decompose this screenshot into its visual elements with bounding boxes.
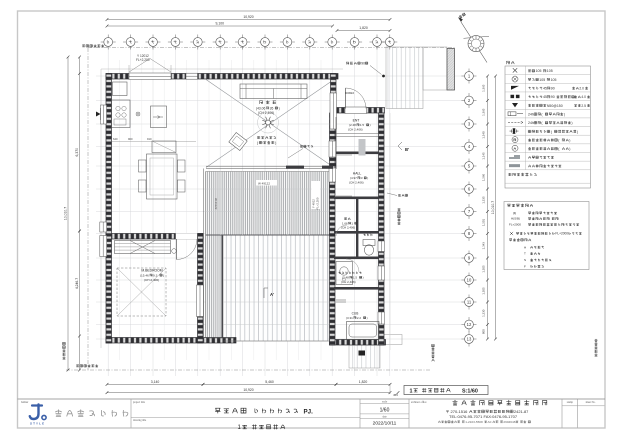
svg-text:4,246.7: 4,246.7 [75,278,79,289]
svg-text:1,235: 1,235 [481,196,485,204]
svg-text:): ) [367,316,368,320]
svg-text:910: 910 [147,137,152,141]
svg-text:105: 105 [539,78,545,82]
svg-text:PJ.: PJ. [304,408,314,415]
svg-text:W: W [513,211,516,215]
svg-text:11: 11 [467,300,472,305]
svg-text:): ) [569,147,570,151]
svg-text:45: 45 [543,87,547,91]
svg-text:): ) [577,130,578,134]
svg-text:(CH 2,406): (CH 2,406) [348,127,363,131]
svg-text:13: 13 [467,337,472,342]
svg-text:(15.46: (15.46 [140,273,149,277]
svg-text:FL+2000: FL+2000 [555,232,568,236]
svg-text:2904648: 2904648 [503,420,515,424]
svg-text:H: H [524,245,526,249]
svg-text:TEL:0476-95-7071 FAX:0476-95-1: TEL:0476-95-7071 FAX:0476-95-1707 [449,414,518,419]
svg-text:1,201: 1,201 [481,218,485,226]
svg-text:90: 90 [551,87,555,91]
svg-text:1,145: 1,145 [481,152,485,160]
svg-text:ENT: ENT [353,119,360,123]
svg-text:10,010.7: 10,010.7 [64,207,68,220]
svg-text:A': A' [270,292,274,297]
svg-text:1,260: 1,260 [481,173,485,181]
svg-text:1,365: 1,365 [481,108,485,116]
svg-text:1,820: 1,820 [359,380,368,384]
svg-text:T: T [524,252,526,256]
svg-text:): ) [569,138,570,142]
svg-text:1,820: 1,820 [359,26,368,30]
svg-text:1,205: 1,205 [481,287,485,295]
svg-text:): ) [275,141,276,145]
svg-text:W 21122: W 21122 [214,198,218,210]
svg-text:455: 455 [393,393,398,397]
svg-text:1,230: 1,230 [481,309,485,317]
svg-text:M.BEDROOM: M.BEDROOM [141,269,162,273]
svg-text:S:1/60: S:1/60 [462,388,478,394]
svg-text:1-2103-5508: 1-2103-5508 [465,420,483,424]
svg-text:24h: 24h [528,121,534,125]
svg-text:10,010.7: 10,010.7 [491,201,495,214]
svg-text:): ) [279,106,280,110]
svg-text:105: 105 [551,78,557,82]
svg-text:): ) [363,276,364,280]
svg-text:45: 45 [543,95,547,99]
svg-text:): ) [370,123,371,127]
svg-text:): ) [571,121,572,125]
svg-text:9,100: 9,100 [216,21,225,25]
svg-text:5,460: 5,460 [265,380,274,384]
svg-text:4.0: 4.0 [581,95,586,99]
svg-text:10,920: 10,920 [243,388,253,392]
svg-text:S: S [524,258,526,262]
svg-text:26: 26 [270,106,274,110]
svg-text:FL+2000: FL+2000 [509,223,521,227]
svg-text:sheet No.: sheet No. [586,401,596,404]
svg-text:): ) [564,112,565,116]
svg-text:FL+2,200: FL+2,200 [136,58,150,62]
svg-text:90: 90 [551,95,555,99]
svg-text:architect office: architect office [411,401,427,404]
svg-text:6,370: 6,370 [75,148,79,157]
svg-text:10,920: 10,920 [243,15,253,19]
svg-text:D0822: D0822 [345,91,354,95]
svg-text:): ) [367,176,368,180]
svg-text:project title: project title [133,401,146,404]
svg-text:(CH 2,406): (CH 2,406) [144,278,159,282]
svg-text:1,205: 1,205 [481,265,485,273]
svg-text:105: 105 [547,69,553,73]
svg-text:(CH 2,406): (CH 2,406) [258,111,274,115]
svg-text:(CH 2,406): (CH 2,406) [341,280,356,284]
svg-text:2.5: 2.5 [581,104,586,108]
svg-text:H(S/B): H(S/B) [511,217,520,221]
svg-text:2.2: 2.2 [357,316,362,320]
svg-text:HALL: HALL [353,172,362,176]
svg-text:1,240: 1,240 [481,131,485,139]
svg-text:B': B' [405,147,409,152]
svg-text:1: 1 [410,388,413,394]
svg-text:A0: A0 [488,420,492,424]
svg-text:(CH 2,406): (CH 2,406) [341,226,355,230]
svg-text:900: 900 [128,137,133,141]
svg-text:90: 90 [361,62,365,66]
svg-text:1/60: 1/60 [380,407,390,413]
svg-text:10: 10 [467,278,472,283]
svg-text:105: 105 [536,69,542,73]
svg-text:(43.06: (43.06 [256,106,266,110]
svg-text:24h: 24h [528,112,534,116]
svg-text:640: 640 [113,137,118,141]
svg-text:F: F [524,265,526,269]
svg-text:scale: scale [382,401,388,404]
svg-text:builder: builder [21,401,28,404]
svg-text:FL+2,200: FL+2,200 [315,197,319,209]
svg-text:12: 12 [467,322,472,327]
svg-text:1,365: 1,365 [481,84,485,92]
svg-text:N50@150: N50@150 [547,104,563,108]
svg-text:800: 800 [481,329,485,334]
svg-text:STYLE: STYLE [30,421,45,425]
svg-text:(3.31: (3.31 [346,316,353,320]
svg-text:(CH 2,406): (CH 2,406) [349,180,364,184]
svg-text:9.3: 9.3 [153,273,158,277]
svg-text:): ) [163,273,164,277]
svg-text:2022/10/11: 2022/10/11 [373,421,397,427]
svg-text:stamp: stamp [567,401,574,404]
svg-text:3,140: 3,140 [151,380,160,384]
svg-text:2.0: 2.0 [579,87,584,91]
svg-text:drawing title: drawing title [133,419,147,422]
svg-text:W 49122: W 49122 [258,181,270,185]
svg-text:1,343: 1,343 [481,242,485,250]
